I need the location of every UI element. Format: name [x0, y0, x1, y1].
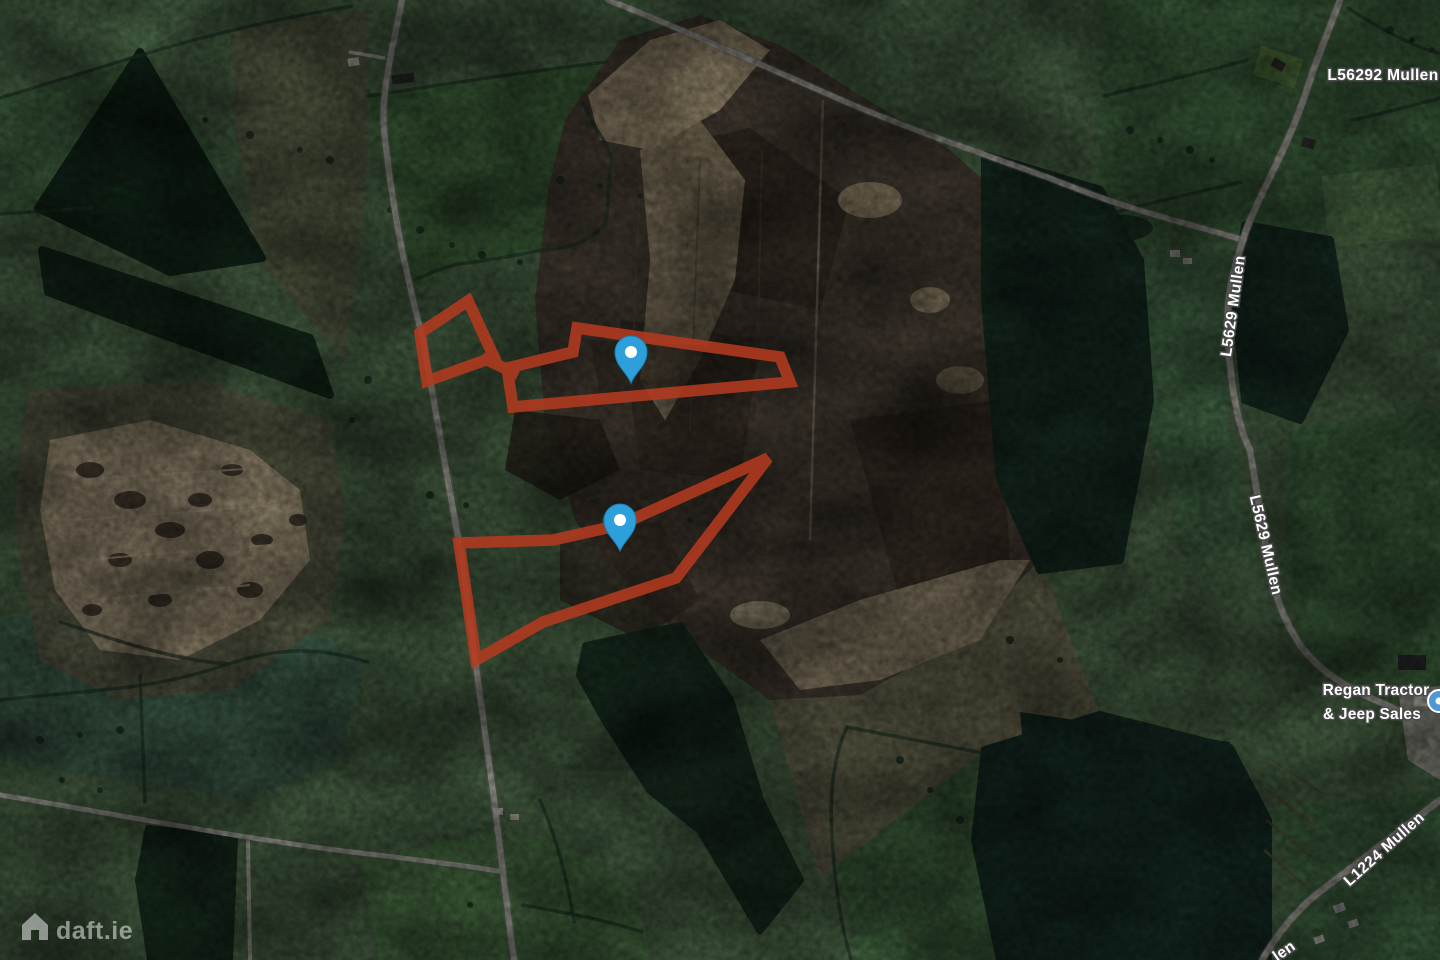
poi-label-line1: Regan Tractor — [1323, 682, 1430, 699]
watermark-text: daft.ie — [56, 917, 133, 945]
pin-hole — [614, 514, 626, 526]
map-canvas[interactable]: L56292 Mullen L5629 Mullen L5629 Mullen … — [0, 0, 1440, 960]
road-label-l56292-mullen: L56292 Mullen — [1327, 67, 1438, 84]
pin-hole — [625, 346, 637, 358]
satellite-map-image: L56292 Mullen L5629 Mullen L5629 Mullen … — [0, 0, 1440, 960]
poi-label-line2: & Jeep Sales — [1323, 706, 1421, 723]
